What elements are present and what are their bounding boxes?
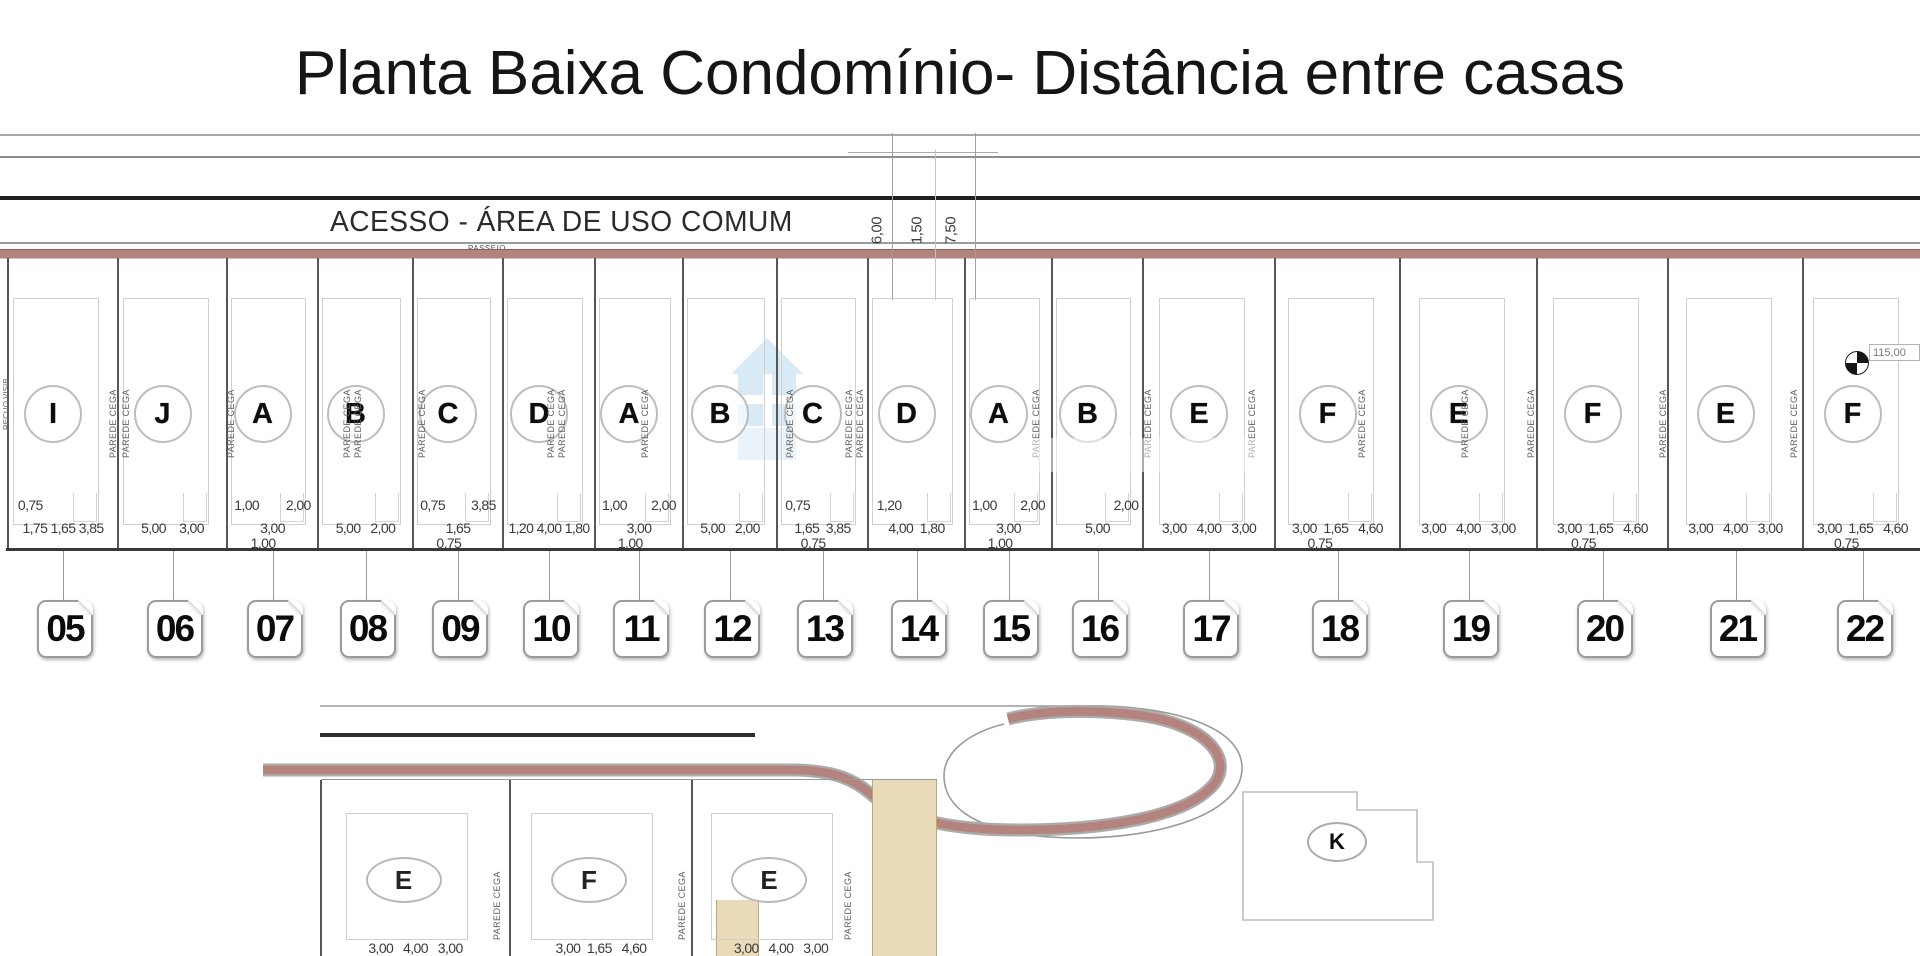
lot-dimensions-main: 3,00 bbox=[965, 521, 1052, 536]
blind-wall-label: PAREDE CEGA bbox=[417, 318, 427, 458]
lot-divider-line bbox=[317, 258, 319, 549]
lot-number-10: 10 bbox=[523, 600, 579, 658]
lot-number-08: 08 bbox=[340, 600, 396, 658]
lot-letter: E bbox=[395, 865, 412, 896]
lot-letter-oval: E bbox=[366, 857, 442, 903]
house-outline-notch bbox=[1348, 493, 1372, 522]
blind-wall-label: PAREDE CEGA bbox=[353, 318, 363, 458]
lot-letter: B bbox=[1077, 398, 1098, 431]
house-outline-notch bbox=[375, 493, 399, 522]
lot-letter-oval: A bbox=[970, 385, 1028, 443]
lot-06: J5,00 3,00 bbox=[118, 258, 227, 549]
lot-dimensions-main: 4,00 1,80 bbox=[868, 521, 965, 536]
lot-dimensions-main: 3,00 bbox=[595, 521, 683, 536]
lot-dimensions-main: 3,00 4,00 3,00 bbox=[321, 940, 510, 956]
lot-20: F3,00 1,65 4,600,75 bbox=[1537, 258, 1668, 549]
blind-wall-label: PAREDE CEGA bbox=[1357, 318, 1367, 458]
dimension-value: 3,85 bbox=[471, 498, 496, 513]
blind-wall-strip bbox=[872, 780, 937, 956]
lot-dimensions-main: 3,00 4,00 3,00 bbox=[1143, 521, 1275, 536]
lot-08: B5,00 2,00 bbox=[318, 258, 413, 549]
blind-wall-label: PAREDE CEGA bbox=[1526, 318, 1536, 458]
lot-number-stem bbox=[1863, 551, 1864, 600]
dimension-value: 2,00 bbox=[651, 498, 676, 513]
blind-wall-label: PAREDE CEGA bbox=[785, 318, 795, 458]
blind-wall-label: PAREDE CEGA bbox=[1031, 318, 1041, 458]
lot-letter-oval: J bbox=[134, 385, 192, 443]
lot-letter-oval: E bbox=[731, 857, 807, 903]
lot-letter: E bbox=[1716, 398, 1735, 431]
house-outline-notch bbox=[1873, 493, 1897, 522]
lot-number-16: 16 bbox=[1072, 600, 1128, 658]
lot-number-15: 15 bbox=[983, 600, 1039, 658]
lot-dimensions-main: 3,00 1,65 4,60 bbox=[510, 940, 692, 956]
lot-dimensions-main: 3,00 1,65 4,60 bbox=[1275, 521, 1400, 536]
lot-divider-line bbox=[509, 780, 511, 956]
house-outline-notch bbox=[557, 493, 581, 522]
lot-07: A1,002,003,001,00 bbox=[227, 258, 318, 549]
dimension-value: 0,75 bbox=[420, 498, 445, 513]
lot-number-07: 07 bbox=[247, 600, 303, 658]
lot-number-19: 19 bbox=[1443, 600, 1499, 658]
lot-number-22: 22 bbox=[1837, 600, 1893, 658]
blind-wall-label: PAREDE CEGA bbox=[492, 800, 502, 940]
lot-letter-oval: I bbox=[24, 385, 82, 443]
lot-letter: F bbox=[1844, 398, 1862, 431]
lot-number-stem bbox=[917, 551, 918, 600]
blind-wall-label: PAREDE CEGA bbox=[121, 318, 131, 458]
house-outline-notch bbox=[1219, 493, 1243, 522]
lot-12: B5,00 2,00 bbox=[683, 258, 777, 549]
lot-letter: D bbox=[896, 398, 917, 431]
house-outline-notch bbox=[183, 493, 207, 522]
lot-16: B2,005,00 bbox=[1052, 258, 1143, 549]
lot-18: F3,00 1,65 4,600,75 bbox=[1275, 258, 1400, 549]
house-outline-notch bbox=[1613, 493, 1637, 522]
lot-number-09: 09 bbox=[432, 600, 488, 658]
corner-visibility-label: RECUO VISIB. bbox=[2, 300, 11, 430]
lot-letter-oval: E bbox=[1430, 385, 1488, 443]
lot-number-stem bbox=[1338, 551, 1339, 600]
dimension-value: 1,00 bbox=[234, 498, 259, 513]
lot-number-stem bbox=[1098, 551, 1099, 600]
lot-letter-oval: F bbox=[1564, 385, 1622, 443]
lot-dimensions-main: 3,00 1,65 4,60 bbox=[1537, 521, 1668, 536]
access-strip-lower-line bbox=[0, 242, 1920, 244]
lot-dimensions-top: 2,00 bbox=[1052, 498, 1143, 513]
lot-number-stem bbox=[1469, 551, 1470, 600]
white-wash-overlay bbox=[1030, 438, 1260, 472]
lot-number-11: 11 bbox=[613, 600, 669, 658]
blind-wall-label: PAREDE CEGA bbox=[226, 318, 236, 458]
lot-letter: A bbox=[988, 398, 1009, 431]
lot-letter-oval: E bbox=[1697, 385, 1755, 443]
lot-number-12: 12 bbox=[704, 600, 760, 658]
lot-number-stem bbox=[458, 551, 459, 600]
lot-letter: J bbox=[154, 398, 170, 431]
survey-distance-tag: 115,00 bbox=[1869, 344, 1920, 361]
lot-number-stem bbox=[823, 551, 824, 600]
lot-number-17: 17 bbox=[1183, 600, 1239, 658]
vertical-dimension-label: 1,50 bbox=[909, 199, 926, 263]
lot-dimensions-main: 1,65 bbox=[413, 521, 503, 536]
lot-dimensions-top: 0,753,85 bbox=[413, 498, 503, 513]
lot-dimensions-main: 3,00 4,00 3,00 bbox=[692, 940, 870, 956]
page-title: Planta Baixa Condomínio- Distância entre… bbox=[0, 38, 1920, 109]
house-outline-notch bbox=[1746, 493, 1770, 522]
lot-number-stem bbox=[549, 551, 550, 600]
lot-letter: F bbox=[1584, 398, 1602, 431]
lot-letter-oval: D bbox=[878, 385, 936, 443]
blind-wall-label: PAREDE CEGA bbox=[1247, 318, 1257, 458]
lot-letter: A bbox=[252, 398, 273, 431]
lot-number-13: 13 bbox=[797, 600, 853, 658]
vertical-dimension-label: 6,00 bbox=[869, 199, 886, 263]
lot-letter-oval: B bbox=[691, 385, 749, 443]
lot-number-stem bbox=[63, 551, 64, 600]
bottom-lot-f-1: F3,00 1,65 4,60 bbox=[510, 780, 692, 956]
lot-dimensions-top: 1,002,00 bbox=[595, 498, 683, 513]
dimension-value: 1,00 bbox=[972, 498, 997, 513]
lot-05: I0,751,75 1,65 3,85 bbox=[8, 258, 118, 549]
lot-letter: F bbox=[581, 865, 597, 896]
lot-dimensions-main: 5,00 3,00 bbox=[118, 521, 227, 536]
lot-number-stem bbox=[273, 551, 274, 600]
blind-wall-label: PAREDE CEGA bbox=[844, 318, 854, 458]
blind-wall-label: PAREDE CEGA bbox=[557, 318, 567, 458]
lot-divider-line bbox=[1536, 258, 1538, 549]
lot-number-stem bbox=[1009, 551, 1010, 600]
vertical-dimension-label: 7,50 bbox=[943, 199, 960, 263]
lot-dimensions-main: 3,00 4,00 3,00 bbox=[1400, 521, 1537, 536]
lot-dimensions-main: 3,00 1,65 4,60 bbox=[1803, 521, 1920, 536]
lot-dimensions-top: 1,002,00 bbox=[965, 498, 1052, 513]
dimension-value: 1,00 bbox=[602, 498, 627, 513]
lot-number-05: 05 bbox=[37, 600, 93, 658]
lot-number-stem bbox=[730, 551, 731, 600]
lot-number-stem bbox=[1209, 551, 1210, 600]
lot-number-18: 18 bbox=[1312, 600, 1368, 658]
lot-divider-line bbox=[320, 780, 322, 956]
lot-letter: A bbox=[619, 398, 640, 431]
blind-wall-label: PAREDE CEGA bbox=[640, 318, 650, 458]
lot-letter: C bbox=[438, 398, 459, 431]
lot-letter: F bbox=[1319, 398, 1337, 431]
lot-number-14: 14 bbox=[891, 600, 947, 658]
lot-divider-line bbox=[1399, 258, 1401, 549]
lot-22: F3,00 1,65 4,600,75 bbox=[1803, 258, 1920, 549]
lot-number-21: 21 bbox=[1710, 600, 1766, 658]
lot-letter: E bbox=[760, 865, 777, 896]
lot-dimensions-main: 3,00 bbox=[227, 521, 318, 536]
blind-wall-label: PAREDE CEGA bbox=[1789, 318, 1799, 458]
lot-dimensions-main: 3,00 4,00 3,00 bbox=[1668, 521, 1803, 536]
lot-11: A1,002,003,001,00 bbox=[595, 258, 683, 549]
lot-dimensions-main: 1,20 4,00 1,80 bbox=[503, 521, 595, 536]
blind-wall-label: PAREDE CEGA bbox=[677, 800, 687, 940]
access-strip-outer-line bbox=[0, 134, 1920, 136]
access-strip-thick-line bbox=[0, 196, 1920, 200]
lot-14: D1,204,00 1,80 bbox=[868, 258, 965, 549]
survey-marker-icon bbox=[1845, 351, 1869, 375]
lot-letter-k: K bbox=[1329, 829, 1345, 855]
blind-wall-label: PAREDE CEGA bbox=[1658, 318, 1668, 458]
blind-wall-label: PAREDE CEGA bbox=[108, 318, 118, 458]
floor-plan-page: Planta Baixa Condomínio- Distância entre… bbox=[0, 0, 1920, 956]
lot-number-stem bbox=[1736, 551, 1737, 600]
lot-divider-line bbox=[682, 258, 684, 549]
dimension-value: 2,00 bbox=[286, 498, 311, 513]
lot-letter-oval-k: K bbox=[1307, 822, 1367, 862]
lot-letter-oval: F bbox=[1824, 385, 1882, 443]
lot-number-20: 20 bbox=[1577, 600, 1633, 658]
lot-divider-line bbox=[502, 258, 504, 549]
lot-row-bottom-line bbox=[6, 548, 1920, 551]
lot-divider-line bbox=[1802, 258, 1804, 549]
lot-letter-oval: F bbox=[1299, 385, 1357, 443]
lot-letter-oval: C bbox=[419, 385, 477, 443]
lot-dimensions-top: 0,75 bbox=[777, 498, 868, 513]
lot-letter: B bbox=[710, 398, 731, 431]
house-outline-notch bbox=[1479, 493, 1503, 522]
lot-number-stem bbox=[366, 551, 367, 600]
lot-number-stem bbox=[173, 551, 174, 600]
lot-number-06: 06 bbox=[147, 600, 203, 658]
lot-divider-line bbox=[691, 780, 693, 956]
lot-number-stem bbox=[1603, 551, 1604, 600]
dimension-value: 2,00 bbox=[1020, 498, 1045, 513]
lot-letter-oval: F bbox=[551, 857, 627, 903]
blind-wall-label: PAREDE CEGA bbox=[342, 318, 352, 458]
lot-dimensions-top: 0,75 bbox=[8, 498, 118, 513]
lot-divider-line bbox=[1274, 258, 1276, 549]
lot-dimensions-main: 5,00 2,00 bbox=[318, 521, 413, 536]
lot-dimensions-main: 1,75 1,65 3,85 bbox=[8, 521, 118, 536]
lot-dimensions-main: 5,00 2,00 bbox=[683, 521, 777, 536]
lot-dimensions-top: 1,20 bbox=[868, 498, 965, 513]
lot-letter: I bbox=[49, 398, 57, 431]
blind-wall-label: PAREDE CEGA bbox=[546, 318, 556, 458]
access-area-label: ACESSO - ÁREA DE USO COMUM bbox=[330, 206, 793, 239]
blind-wall-label: PAREDE CEGA bbox=[855, 318, 865, 458]
lot-letter: E bbox=[1189, 398, 1208, 431]
access-strip-upper-line bbox=[0, 156, 1920, 158]
lot-21: E3,00 4,00 3,00 bbox=[1668, 258, 1803, 549]
lot-number-stem bbox=[639, 551, 640, 600]
blind-wall-label: PAREDE CEGA bbox=[1143, 318, 1153, 458]
lot-letter-oval: E bbox=[1170, 385, 1228, 443]
lot-dimensions-top: 1,002,00 bbox=[227, 498, 318, 513]
blind-wall-label: PAREDE CEGA bbox=[843, 800, 853, 940]
lot-dimensions-main: 5,00 bbox=[1052, 521, 1143, 536]
lot-letter-oval: A bbox=[234, 385, 292, 443]
blind-wall-label: PAREDE CEGA bbox=[1460, 318, 1470, 458]
lot-dimensions-main: 1,65 3,85 bbox=[777, 521, 868, 536]
lot-letter: C bbox=[802, 398, 823, 431]
lot-letter-oval: B bbox=[1059, 385, 1117, 443]
bottom-lot-e-0: E3,00 4,00 3,00 bbox=[321, 780, 510, 956]
house-outline-notch bbox=[739, 493, 763, 522]
